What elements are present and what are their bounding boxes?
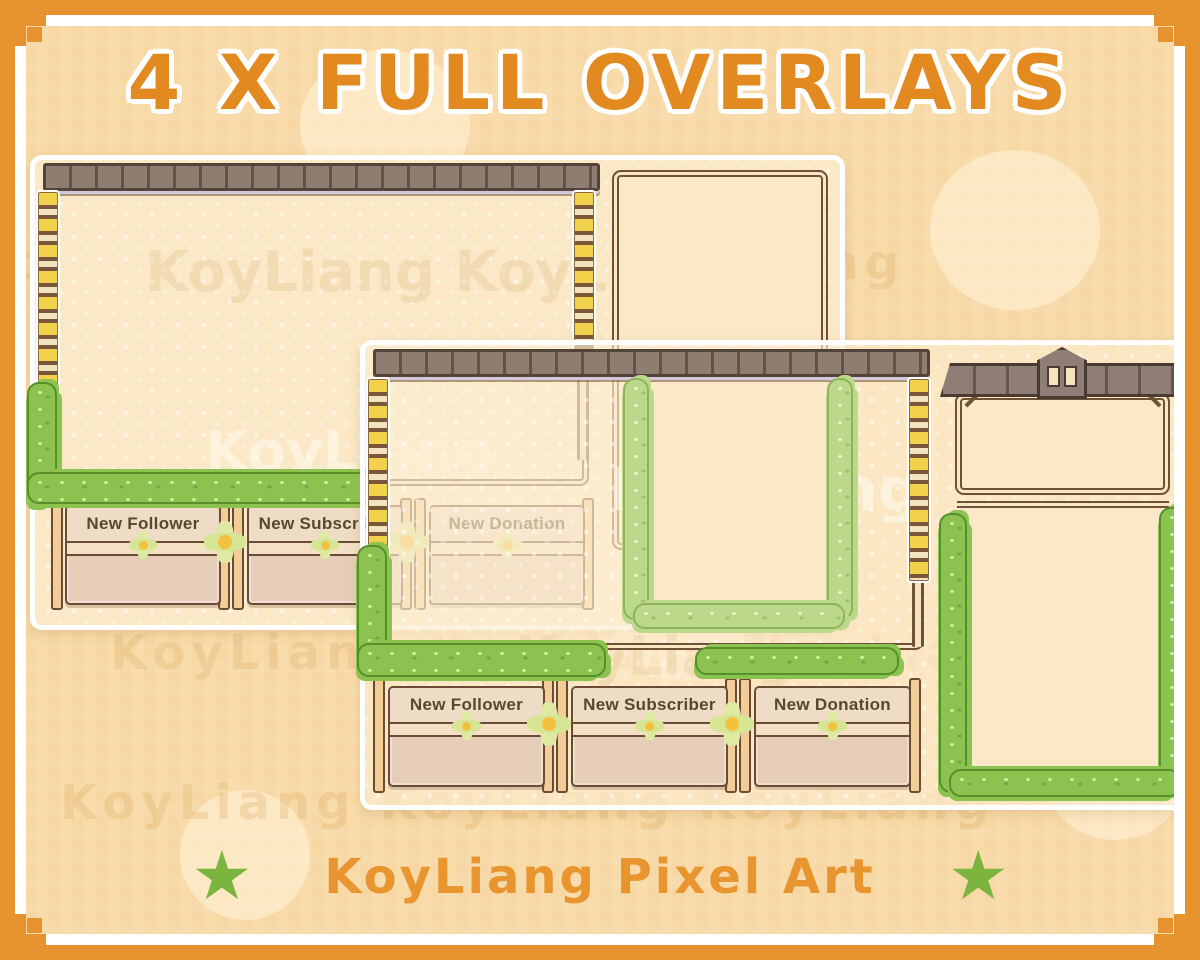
- roof-dormer: [1037, 347, 1087, 399]
- webcam-vine-bottom: [633, 603, 845, 629]
- alert-panel-subscriber: New Subscriber: [571, 686, 728, 787]
- vine-bottom-clump: [695, 647, 899, 675]
- house-panel-frame: [955, 393, 1170, 495]
- flower-icon: [452, 711, 482, 741]
- overlay-card-front: KoyLiang KoyLiang New Fo: [360, 340, 1200, 810]
- panel-top-line: [957, 501, 1169, 508]
- vine-bottom: [357, 643, 606, 677]
- fence-post: [373, 678, 385, 793]
- side-vine-right: [1159, 507, 1187, 793]
- listing-image: KoyLiang KoyLiang KoyLiang KoyLiang KoyL…: [0, 0, 1200, 960]
- side-vine-left: [939, 513, 967, 793]
- flower-chain-right: [574, 192, 594, 354]
- star-icon: ★: [948, 843, 1009, 911]
- bokeh-circle: [930, 150, 1100, 310]
- flower-chain-right: [909, 379, 929, 581]
- alert-panel-donation: New Donation: [754, 686, 911, 787]
- wood-beam: [373, 349, 930, 377]
- wood-beam: [43, 163, 600, 191]
- flower-chain-left: [368, 379, 388, 556]
- fence-post: [51, 498, 63, 610]
- wood-post: [912, 579, 924, 647]
- flower-icon: [635, 711, 665, 741]
- flower-icon-large: [709, 701, 755, 747]
- brand-name: KoyLiang Pixel Art: [324, 849, 875, 905]
- alert-panel-follower: New Follower: [388, 686, 545, 787]
- flower-icon: [128, 530, 158, 560]
- flower-icon: [818, 711, 848, 741]
- side-vine-bottom: [949, 769, 1181, 797]
- flower-icon: [310, 530, 340, 560]
- page-title: 4 X FULL OVERLAYS: [0, 38, 1200, 127]
- footer-brand-row: ★ KoyLiang Pixel Art ★: [0, 843, 1200, 911]
- star-icon: ★: [191, 843, 252, 911]
- dormer-window: [1047, 366, 1060, 387]
- flower-icon-large: [203, 520, 247, 564]
- flower-chain-left: [38, 192, 58, 394]
- side-vine-panel: [943, 507, 1183, 795]
- alert-panel-follower: New Follower: [65, 505, 221, 605]
- flower-icon-large: [526, 701, 572, 747]
- webcam-panel: [627, 378, 847, 625]
- dormer-window: [1064, 366, 1077, 387]
- webcam-vine-left: [623, 378, 649, 620]
- webcam-vine-right: [827, 378, 853, 620]
- vine-bottom: [27, 472, 381, 504]
